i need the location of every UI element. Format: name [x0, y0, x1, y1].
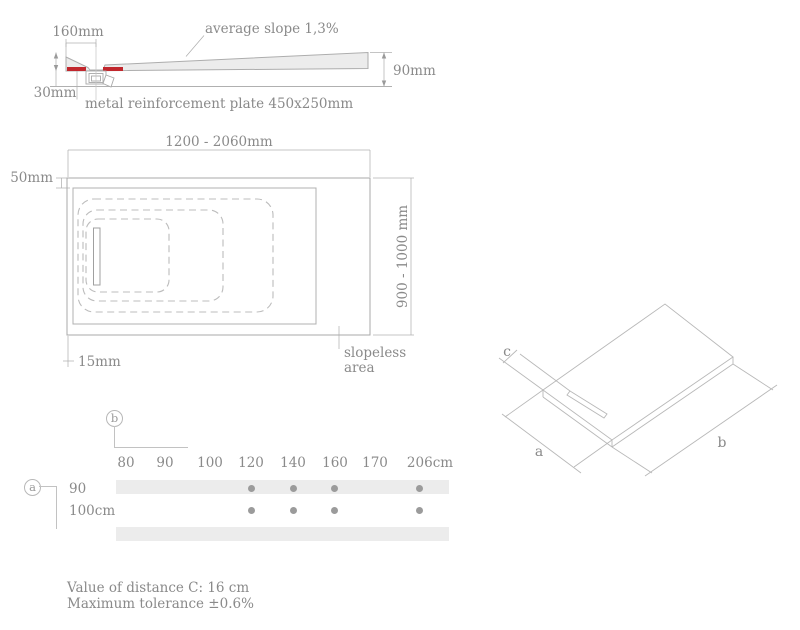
col-header-140: 140: [280, 455, 306, 471]
note-distance-c: Value of distance C: 16 cm: [67, 581, 254, 597]
col-header-90: 90: [156, 455, 173, 471]
col-header-80: 80: [117, 455, 134, 471]
size-availability-grid: b a 80 90 100 120 140 160 170 206cm 90 1…: [0, 0, 800, 630]
footnotes: Value of distance C: 16 cm Maximum toler…: [67, 581, 254, 612]
row-header-90: 90: [69, 482, 86, 497]
shower-tray-technical-sheet: 160mm 30mm average slope 1,3% 90mm metal…: [0, 0, 800, 630]
table-stripe: [116, 480, 449, 494]
availability-dot: [248, 485, 255, 492]
availability-dot: [331, 485, 338, 492]
col-header-206: 206cm: [407, 455, 453, 471]
axis-b-line: [114, 426, 188, 448]
note-tolerance: Maximum tolerance ±0.6%: [67, 597, 254, 613]
availability-dot: [331, 507, 338, 514]
col-header-100: 100: [197, 455, 223, 471]
availability-dot: [290, 507, 297, 514]
availability-dot: [416, 507, 423, 514]
availability-dot: [416, 485, 423, 492]
col-header-170: 170: [362, 455, 388, 471]
col-header-160: 160: [322, 455, 348, 471]
table-stripe: [116, 527, 449, 541]
availability-dot: [290, 485, 297, 492]
row-header-100: 100cm: [69, 504, 115, 519]
col-header-120: 120: [238, 455, 264, 471]
axis-b-badge: b: [106, 410, 123, 427]
availability-dot: [248, 507, 255, 514]
axis-a-line: [39, 486, 57, 529]
